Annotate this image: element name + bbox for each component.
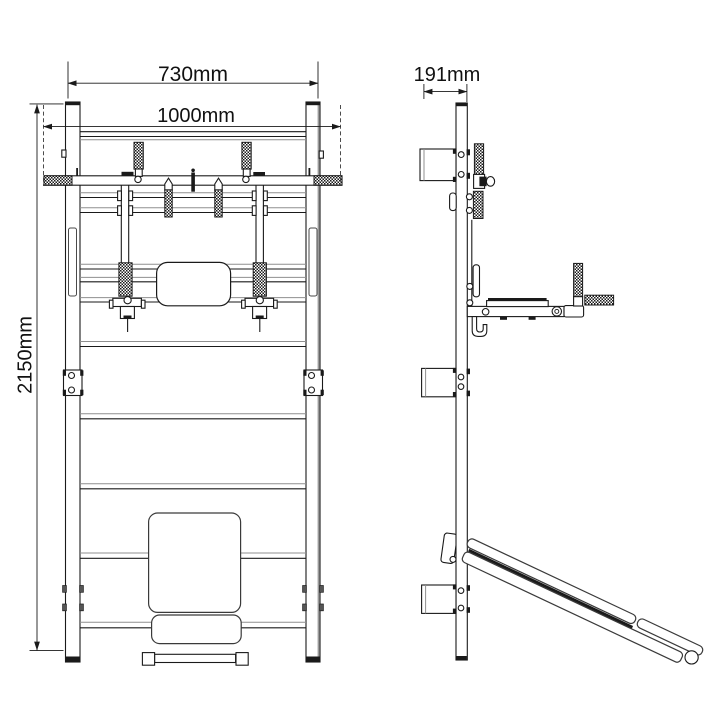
clamp-right bbox=[242, 297, 278, 332]
knurled-grip bbox=[253, 263, 266, 296]
hanging-grip-right bbox=[242, 142, 251, 182]
bench-roller bbox=[685, 651, 698, 664]
pull-up-bar-end bbox=[486, 177, 494, 187]
side-inclined-bench bbox=[459, 537, 704, 670]
backrest-pad bbox=[157, 262, 231, 305]
bench-foot bbox=[236, 653, 248, 666]
head-rail bbox=[80, 132, 306, 140]
wall-bars-drawing: 730mm 1000mm 2150mm bbox=[0, 0, 720, 720]
pointed-grip-left bbox=[165, 178, 172, 217]
knurled-grip bbox=[119, 263, 132, 296]
j-hook bbox=[472, 317, 487, 337]
bench-seat-pad bbox=[152, 615, 242, 644]
folded-bench-front bbox=[142, 513, 248, 665]
bench-foot-bar bbox=[155, 654, 236, 662]
front-wall-bracket-upper-right bbox=[303, 370, 324, 396]
dimension-label-overall-height: 2150mm bbox=[15, 316, 37, 394]
pointed-grip-right bbox=[215, 178, 222, 217]
rung-end bbox=[466, 207, 472, 213]
side-dip-unit bbox=[467, 220, 614, 337]
bench-hook-bolt bbox=[450, 556, 456, 562]
pointed-grip-side bbox=[473, 191, 483, 218]
pull-up-bar bbox=[44, 168, 342, 192]
dimension-191mm: 191mm bbox=[414, 64, 481, 102]
bench-backrest-pad-side bbox=[466, 537, 637, 624]
dimension-label-overall-width: 1000mm bbox=[157, 105, 235, 127]
bench-backrest-pad bbox=[149, 513, 241, 612]
side-post bbox=[456, 103, 467, 660]
clamp-left bbox=[109, 297, 145, 332]
bar-knurled-end bbox=[44, 176, 72, 185]
post-clamp-tab bbox=[62, 150, 66, 157]
bar-knurled-end bbox=[314, 176, 342, 185]
dimension-730mm: 730mm bbox=[68, 62, 318, 99]
side-view: 191mm bbox=[414, 64, 705, 670]
technical-drawing-canvas: 730mm 1000mm 2150mm bbox=[0, 0, 720, 720]
post-clamp-tab bbox=[319, 151, 323, 158]
dimension-label-top-width: 730mm bbox=[158, 63, 228, 86]
bench-foot bbox=[142, 653, 154, 666]
dimension-label-depth: 191mm bbox=[414, 64, 481, 86]
front-wall-bracket-upper-left bbox=[63, 370, 84, 396]
front-view: 730mm 1000mm 2150mm bbox=[15, 62, 343, 666]
bench-frame-board bbox=[461, 551, 684, 664]
hanging-grip-left bbox=[134, 142, 143, 182]
wall-side-slot bbox=[450, 193, 457, 211]
dimension-2150mm: 2150mm bbox=[15, 104, 64, 651]
rung-end bbox=[466, 194, 472, 200]
hanging-grip-side bbox=[474, 144, 483, 175]
dip-handle-horizontal bbox=[585, 295, 614, 305]
locking-pin bbox=[191, 173, 195, 192]
backrest-pad-side bbox=[487, 301, 549, 307]
dip-handle-vertical bbox=[574, 263, 583, 296]
